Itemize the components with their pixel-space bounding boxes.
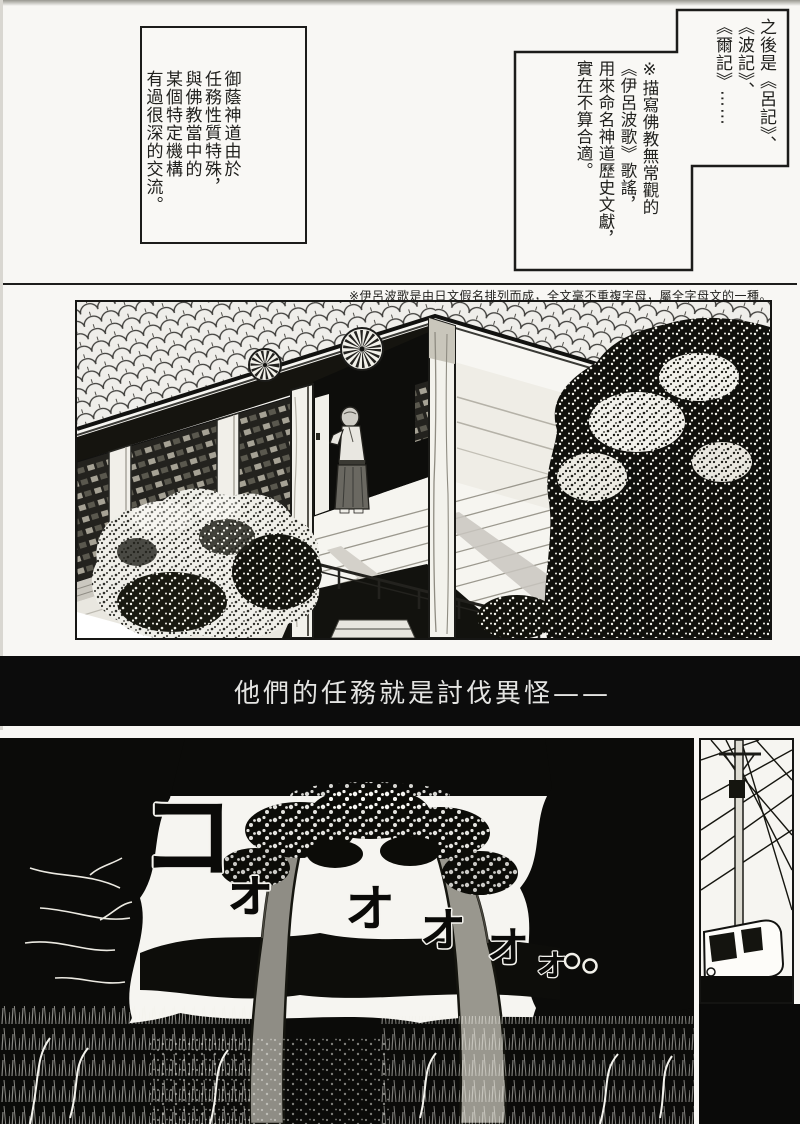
sfx-glyph: ォ — [533, 942, 569, 983]
van-windshield — [709, 932, 737, 962]
narration-text-right-upper: 之後是《呂記》、 《波記》、 《爾記》⋯⋯ — [682, 18, 777, 168]
manga-page: 御蔭神道由於 任務性質特殊， 與佛教當中的 某個特定機構 有過很深的交流。 之後… — [0, 0, 800, 1124]
pillar-corner — [429, 318, 455, 638]
sfx-glyph: コ — [140, 783, 235, 893]
door-handle — [316, 433, 320, 440]
narration-text-left: 御蔭神道由於 任務性質特殊， 與佛教當中的 某個特定機構 有過很深的交流。 — [142, 70, 240, 214]
page-divider-rule — [3, 283, 797, 285]
utility-illustration — [701, 740, 792, 1002]
sfx-glyph: オ — [345, 880, 395, 938]
sfx-glyph: オ — [487, 923, 529, 972]
sfx-glyph: ォ — [222, 860, 276, 923]
temple-illustration — [77, 302, 770, 638]
caption-text: 他們的任務就是討伐異怪—— — [234, 673, 611, 710]
medallion-right — [341, 328, 383, 370]
van-ground-shadow — [701, 976, 792, 1002]
bottom-right-black — [699, 1004, 800, 1124]
foreground-bush — [92, 488, 322, 638]
figure-hakama — [335, 465, 369, 509]
caption-band: 他們的任務就是討伐異怪—— — [0, 656, 800, 726]
utility-panel — [699, 738, 794, 1004]
scan-edge-left — [0, 0, 3, 730]
van-window — [741, 927, 763, 953]
narration-box-left: 御蔭神道由於 任務性質特殊， 與佛教當中的 某個特定機構 有過很深的交流。 — [140, 26, 307, 244]
medallion-left — [249, 349, 281, 381]
figure-hair — [341, 407, 359, 427]
transformer-box — [729, 780, 745, 798]
temple-panel — [75, 300, 772, 640]
figure-obi — [339, 460, 365, 465]
narration-text-right-lower: ※描寫佛教無常觀的 《伊呂波歌》歌謠， 用來命名神道歷史文獻， 實在不算合適。 — [520, 60, 660, 266]
steps — [331, 620, 415, 638]
brush-texture — [150, 1038, 390, 1124]
forest-panel: コ ォ オ オ オ ォ — [0, 738, 694, 1124]
sfx-glyph: オ — [420, 903, 466, 957]
